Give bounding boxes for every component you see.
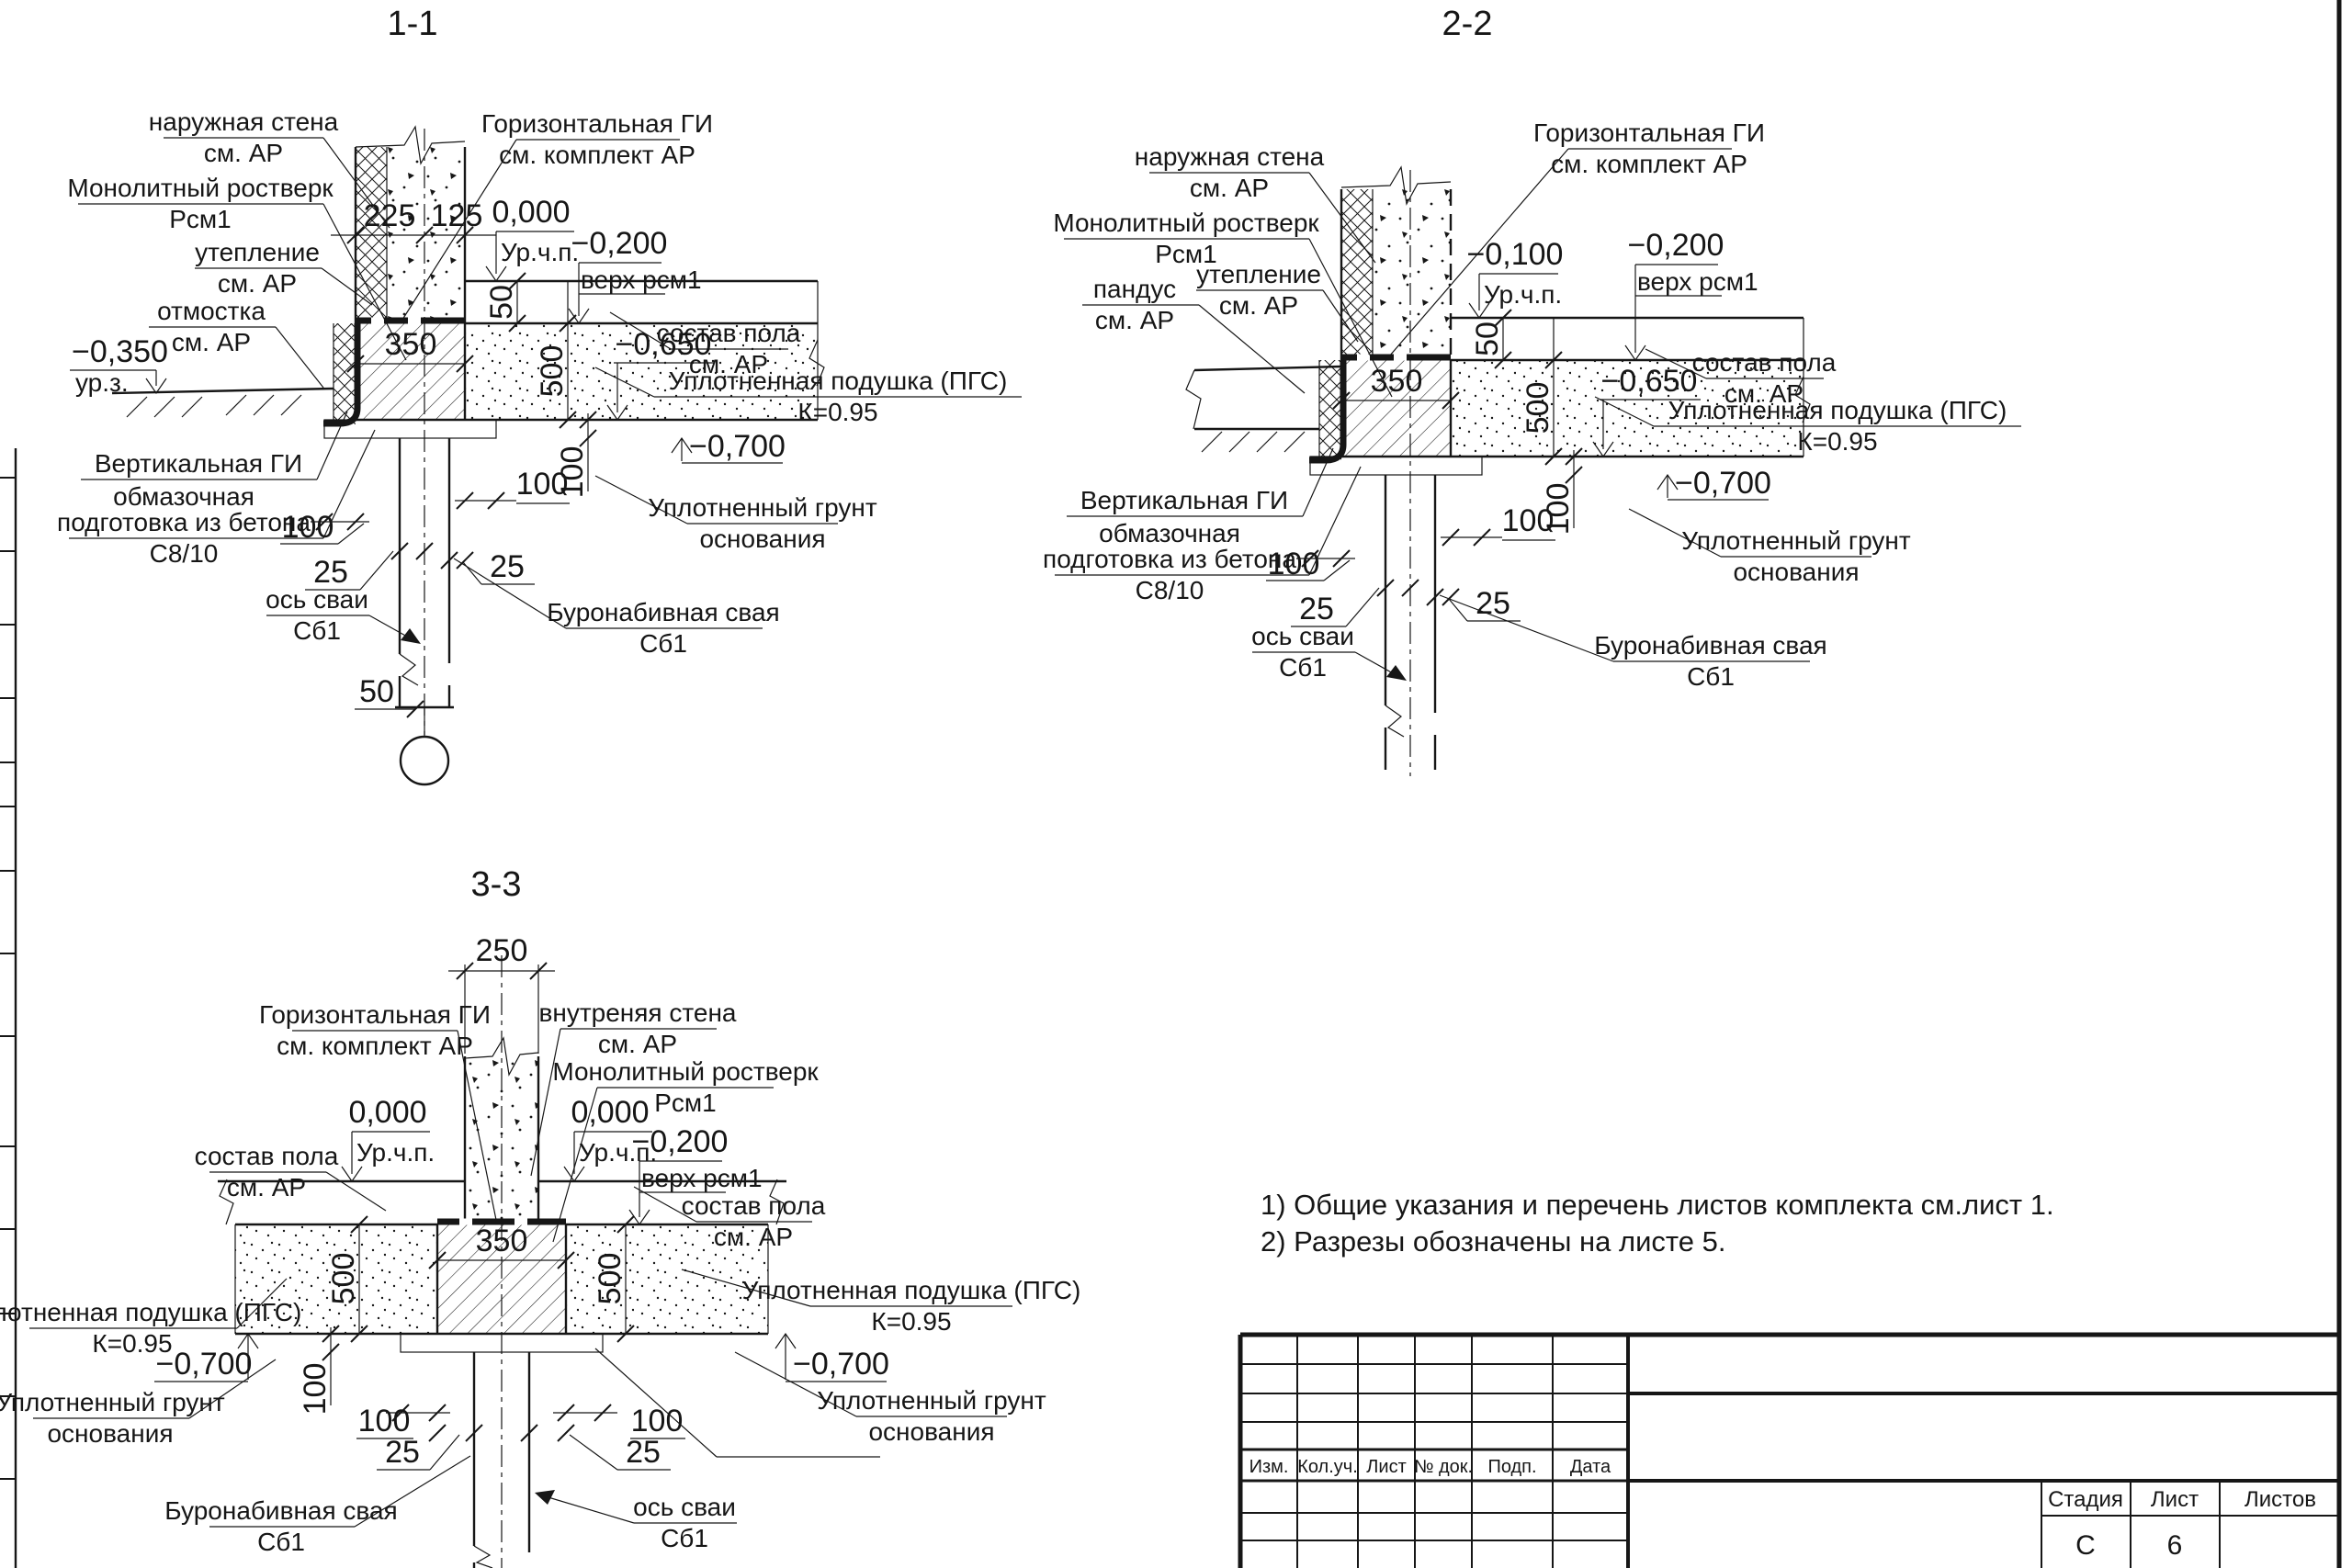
label-ramp-1: пандус	[1093, 275, 1176, 303]
dim-350: 350	[476, 1224, 528, 1258]
level-0000-left: 0,000 Ур.ч.п.	[342, 1095, 435, 1181]
pile-break	[400, 654, 418, 685]
label-smear-prep-3: С8/10	[1136, 576, 1204, 604]
label-grillage-2: Рсм1	[654, 1089, 717, 1117]
dim-100-right: 100	[516, 467, 569, 502]
label-soil-2: основания	[699, 525, 825, 553]
tb-header-list: Лист	[1366, 1457, 1406, 1477]
label-cushion-right-1: Уплотненная подушка (ПГС)	[742, 1276, 1081, 1304]
ground-line	[112, 389, 334, 393]
tb-sheets-header: Листов	[2245, 1487, 2316, 1512]
label-insulation: утепление см. АР	[1196, 260, 1358, 342]
label-pile-1: Буронабивная свая	[547, 598, 779, 626]
note-line-2: 2) Разрезы обозначены на листе 5.	[1261, 1225, 1725, 1258]
level-m0200: −0,200 верх рсм1	[1625, 228, 1758, 360]
label-floor-1: состав пола	[657, 319, 801, 347]
tb-sheet-header: Лист	[2151, 1487, 2199, 1512]
section-3-3-title: 3-3	[471, 865, 522, 904]
tb-stage-header: Стадия	[2048, 1487, 2123, 1512]
label-vertical-gi: Вертикальная ГИ	[81, 412, 347, 479]
level-m0700-value: −0,700	[689, 429, 786, 464]
label-vertical-gi-1: Вертикальная ГИ	[1080, 486, 1288, 514]
label-pile-2: Сб1	[639, 629, 687, 658]
dim-100-vert: 100	[298, 1363, 333, 1416]
level-m0200-value: −0,200	[571, 226, 668, 261]
level-0000-ref: Ур.ч.п.	[501, 238, 579, 266]
label-horizontal-gi-2: см. комплект АР	[499, 141, 695, 169]
label-blind-area-1: отмостка	[157, 297, 266, 325]
level-m0200-value: −0,200	[1628, 228, 1724, 263]
label-cushion-2: К=0.95	[1797, 427, 1877, 456]
label-soil: Уплотненный грунт основания	[595, 476, 877, 553]
level-m0700-right: −0,700	[775, 1334, 889, 1382]
note-line-1: 1) Общие указания и перечень листов комп…	[1261, 1189, 2054, 1221]
level-m0700-value: −0,700	[1675, 466, 1771, 501]
dim-50-bottom: 50	[359, 674, 394, 709]
stamp-right: Стадия Лист Листов С 6	[1628, 1393, 2339, 1568]
section-2-2: 2-2	[1043, 5, 2021, 776]
label-pile-axis-1: ось сваи	[633, 1493, 736, 1521]
label-smear-prep-2: подготовка из бетона	[1043, 545, 1296, 573]
dim-100-right: 100	[1502, 503, 1555, 538]
label-soil-right-1: Уплотненный грунт	[817, 1386, 1046, 1415]
label-vertical-gi: Вертикальная ГИ	[1067, 448, 1333, 516]
label-grillage-1: Монолитный ростверк	[552, 1057, 819, 1086]
label-pile-1: Буронабивная свая	[1594, 631, 1826, 660]
label-floor-1: состав пола	[1692, 348, 1837, 377]
revision-table: Изм. Кол.уч. Лист № док. Подп. Дата	[1240, 1335, 1628, 1568]
tb-header-ndok: № док.	[1414, 1457, 1473, 1477]
wall-concrete	[1373, 189, 1451, 360]
label-floor-right-1: состав пола	[682, 1191, 826, 1220]
level-m0200-ref: верх рсм1	[641, 1164, 763, 1192]
level-m0350-ref: ур.з.	[75, 368, 129, 397]
tb-header-kol: Кол.уч.	[1297, 1457, 1358, 1477]
level-m0200-ref: верх рсм1	[581, 265, 702, 294]
level-m0100-ref: Ур.ч.п.	[1484, 280, 1562, 309]
level-m0200-value: −0,200	[632, 1124, 729, 1159]
ramp-break	[1186, 370, 1201, 429]
label-insulation-1: утепление	[195, 238, 320, 266]
dim-50: 50	[1470, 321, 1505, 356]
label-horizontal-gi-1: Горизонтальная ГИ	[481, 109, 713, 138]
label-soil-1: Уплотненный грунт	[648, 493, 877, 522]
label-horizontal-gi-1: Горизонтальная ГИ	[1533, 118, 1765, 147]
label-soil: Уплотненный грунт основания	[1629, 509, 1911, 586]
label-pile-2: Сб1	[257, 1528, 305, 1556]
label-cushion-left-1: Уплотненная подушка (ПГС)	[0, 1298, 301, 1326]
label-inner-wall-2: см. АР	[598, 1030, 677, 1058]
dim-125: 125	[431, 198, 483, 233]
label-floor-left-2: см. АР	[227, 1173, 306, 1201]
ground-hatch	[127, 395, 301, 417]
label-pile-axis-2: Сб1	[661, 1524, 708, 1552]
label-horizontal-gi-1: Горизонтальная ГИ	[259, 1000, 491, 1029]
level-m0200: −0,200 верх рсм1	[569, 226, 702, 323]
label-horizontal-gi-2: см. комплект АР	[1551, 150, 1747, 178]
notes: 1) Общие указания и перечень листов комп…	[1261, 1189, 2054, 1258]
level-0000-value: 0,000	[492, 195, 570, 230]
label-smear-prep-1: обмазочная	[113, 482, 254, 511]
label-pile-axis-1: ось сваи	[266, 585, 368, 614]
dim-500-right: 500	[593, 1253, 628, 1305]
frame-left-ticks	[0, 478, 16, 1479]
level-m0100-value: −0,100	[1467, 237, 1564, 272]
label-pile-1: Буронабивная свая	[164, 1496, 397, 1525]
label-pile-axis-2: Сб1	[1279, 653, 1327, 682]
level-m0700: −0,700	[1657, 466, 1771, 501]
label-grillage-1: Монолитный ростверк	[1053, 209, 1319, 237]
pile-break	[474, 1546, 492, 1568]
label-cushion-left-2: К=0.95	[92, 1329, 172, 1358]
label-floor-left-1: состав пола	[195, 1142, 339, 1170]
tb-header-podp: Подп.	[1487, 1457, 1536, 1477]
label-cushion-right-2: К=0.95	[871, 1307, 951, 1336]
foundation-sections-drawing: 1-1	[0, 0, 2352, 1568]
section-1-1: 1-1	[57, 5, 1022, 784]
ground-hatch	[1202, 432, 1305, 452]
label-smear-prep-2: подготовка из бетона	[57, 508, 311, 536]
label-insulation: утепление см. АР	[195, 238, 372, 305]
label-outer-wall-2: см. АР	[1190, 174, 1269, 202]
label-soil-left-2: основания	[47, 1419, 173, 1448]
drawing-sheet: 1-1	[0, 0, 2352, 1568]
tb-header-izm: Изм.	[1249, 1457, 1289, 1477]
label-outer-wall-2: см. АР	[204, 139, 283, 167]
label-inner-wall-1: внутреняя стена	[539, 998, 737, 1027]
level-0000: 0,000 Ур.ч.п.	[486, 195, 579, 281]
label-pile-axis: ось сваи Сб1	[535, 1490, 737, 1552]
dim-500: 500	[1521, 382, 1555, 434]
dim-100-left: 100	[358, 1404, 411, 1438]
label-outer-wall-1: наружная стена	[1135, 142, 1325, 171]
vertical-gi-band	[334, 323, 356, 424]
label-vertical-gi-1: Вертикальная ГИ	[95, 449, 302, 478]
label-cushion-2: К=0.95	[797, 398, 877, 426]
label-insulation-2: см. АР	[1219, 291, 1298, 320]
dim-350: 350	[1371, 364, 1423, 399]
label-insulation-1: утепление	[1196, 260, 1321, 288]
level-m0350: −0,350 ур.з.	[70, 334, 168, 397]
label-pile-axis: ось сваи Сб1	[266, 585, 421, 645]
label-soil-right-2: основания	[868, 1417, 994, 1446]
leader-arrowhead	[1386, 665, 1407, 681]
vertical-gi-band	[1319, 360, 1341, 461]
label-insulation-2: см. АР	[218, 269, 297, 298]
label-cushion-1: Уплотненная подушка (ПГС)	[669, 367, 1008, 395]
label-pile-2: Сб1	[1687, 662, 1735, 691]
section-3-3: 3-3	[0, 865, 1080, 1568]
pile-tip-circle	[401, 737, 448, 784]
label-outer-wall-1: наружная стена	[149, 107, 339, 136]
label-soil-right: Уплотненный грунт основания	[735, 1352, 1046, 1446]
label-horizontal-gi-2: см. комплект АР	[277, 1032, 473, 1060]
tb-header-data: Дата	[1570, 1457, 1611, 1477]
tb-stage-value: С	[2075, 1530, 2096, 1561]
section-1-1-title: 1-1	[388, 5, 438, 43]
title-block: Изм. Кол.уч. Лист № док. Подп. Дата Стад…	[1240, 1335, 2339, 1568]
level-m0700-right-value: −0,700	[793, 1347, 889, 1382]
label-soil-left-1: Уплотненный грунт	[0, 1388, 225, 1416]
level-m0650-value: −0,650	[1601, 364, 1698, 399]
leader-arrowhead	[401, 628, 421, 644]
tb-sheet-value: 6	[2167, 1530, 2183, 1561]
dim-500-left: 500	[326, 1253, 361, 1305]
dim-25-right: 25	[626, 1435, 661, 1470]
label-blind-area-2: см. АР	[172, 328, 251, 356]
label-smear-prep-1: обмазочная	[1099, 519, 1240, 547]
label-smear-prep-3: С8/10	[150, 539, 219, 568]
label-blind-area: отмостка см. АР	[149, 297, 323, 388]
dim-25-left: 25	[385, 1435, 420, 1470]
label-cushion-1: Уплотненная подушка (ПГС)	[1668, 396, 2007, 424]
label-grillage-1: Монолитный ростверк	[67, 174, 334, 202]
section-2-2-title: 2-2	[1442, 5, 1493, 43]
dim-250: 250	[476, 933, 528, 968]
level-m0200-ref: верх рсм1	[1637, 267, 1758, 296]
dim-500: 500	[535, 345, 570, 398]
dim-100-right: 100	[631, 1404, 684, 1438]
level-m0350-value: −0,350	[72, 334, 168, 369]
label-pile-axis-1: ось сваи	[1251, 622, 1354, 650]
level-0000-left-value: 0,000	[348, 1095, 426, 1130]
dim-25-right: 25	[490, 549, 525, 584]
label-floor-right-2: см. АР	[714, 1223, 793, 1251]
leader-arrowhead	[535, 1490, 555, 1505]
wall-concrete	[465, 1056, 538, 1224]
label-pile-axis-2: Сб1	[293, 616, 341, 645]
dim-350: 350	[385, 327, 437, 362]
level-0000-left-ref: Ур.ч.п.	[356, 1138, 435, 1167]
dim-50: 50	[484, 285, 519, 320]
label-pile-axis: ось сваи Сб1	[1251, 622, 1407, 682]
label-soil-2: основания	[1733, 558, 1859, 586]
label-ramp-2: см. АР	[1095, 306, 1174, 334]
pile-break	[1385, 705, 1404, 737]
label-grillage-2: Рсм1	[169, 205, 232, 233]
label-soil-1: Уплотненный грунт	[1681, 526, 1911, 555]
label-pile: Буронабивная свая Сб1	[164, 1456, 470, 1556]
wall-insulation	[1341, 189, 1373, 360]
level-m0700: −0,700	[672, 429, 786, 464]
